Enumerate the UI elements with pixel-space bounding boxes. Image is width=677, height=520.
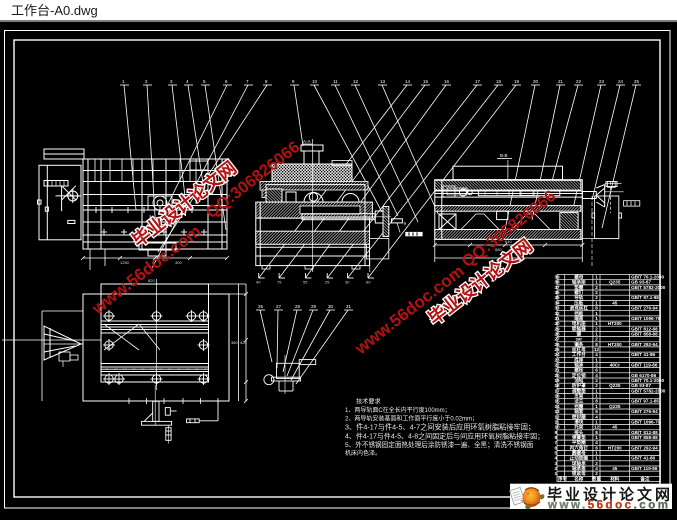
svg-text:工作台-A0.dwg: 工作台-A0.dwg bbox=[11, 3, 98, 18]
svg-text:26: 26 bbox=[258, 304, 264, 309]
svg-text:GB/T 292-94: GB/T 292-94 bbox=[631, 342, 658, 347]
svg-text:GB/T 5782-2000: GB/T 5782-2000 bbox=[631, 388, 666, 393]
svg-text:HT200: HT200 bbox=[608, 321, 622, 326]
svg-text:17: 17 bbox=[475, 79, 481, 84]
svg-text:GB/T 1096-79: GB/T 1096-79 bbox=[631, 419, 661, 424]
svg-text:材料: 材料 bbox=[609, 475, 620, 482]
svg-text:4、件4-17与件4-5、4-8之间固定后与间应用环氧树脂粘: 4、件4-17与件4-5、4-8之间固定后与间应用环氧树脂粘接牢固； bbox=[345, 432, 544, 441]
svg-text:2、两导轨安装基面和工作面平行度小于0.02mm；: 2、两导轨安装基面和工作面平行度小于0.02mm； bbox=[345, 415, 478, 423]
svg-text:60: 60 bbox=[366, 280, 371, 285]
svg-text:GB/T 119-86: GB/T 119-86 bbox=[631, 466, 658, 471]
svg-text:40Cr: 40Cr bbox=[610, 363, 620, 368]
svg-text:30: 30 bbox=[328, 304, 334, 309]
svg-text:28: 28 bbox=[295, 304, 301, 309]
svg-text:GB/T 1096-79: GB/T 1096-79 bbox=[631, 316, 661, 321]
svg-text:GB/T 276-94: GB/T 276-94 bbox=[631, 306, 658, 311]
svg-text:技术要求: 技术要求 bbox=[356, 398, 381, 406]
svg-text:19: 19 bbox=[514, 79, 520, 84]
svg-text:45: 45 bbox=[612, 466, 618, 471]
svg-text:GB/T 292-94: GB/T 292-94 bbox=[631, 445, 658, 450]
svg-text:GB/T 41-86: GB/T 41-86 bbox=[631, 352, 655, 357]
svg-text:1、两导轨面C在全长内平行度100mm；: 1、两导轨面C在全长内平行度100mm； bbox=[345, 406, 451, 414]
svg-text:27: 27 bbox=[276, 304, 282, 309]
svg-text:备注: 备注 bbox=[639, 475, 650, 482]
svg-text:55: 55 bbox=[303, 280, 308, 285]
svg-text:15: 15 bbox=[423, 79, 429, 84]
svg-text:GB/T 858-88: GB/T 858-88 bbox=[631, 332, 658, 337]
svg-text:机床内色泽。: 机床内色泽。 bbox=[345, 449, 381, 457]
svg-text:GB/T 276-94: GB/T 276-94 bbox=[631, 409, 658, 414]
svg-text:GB/T 858-88: GB/T 858-88 bbox=[631, 435, 658, 440]
svg-text:序号: 序号 bbox=[558, 475, 568, 482]
svg-text:40: 40 bbox=[256, 280, 261, 285]
svg-text:29: 29 bbox=[311, 304, 317, 309]
svg-text:21: 21 bbox=[558, 79, 564, 84]
svg-text:75: 75 bbox=[277, 280, 282, 285]
svg-text:HT200: HT200 bbox=[608, 342, 622, 347]
svg-text:300: 300 bbox=[175, 260, 182, 265]
svg-text:名称: 名称 bbox=[574, 475, 584, 482]
svg-text:18: 18 bbox=[496, 79, 502, 84]
svg-text:23: 23 bbox=[599, 79, 605, 84]
svg-text:GB/T 97.1-85: GB/T 97.1-85 bbox=[631, 295, 659, 300]
svg-text:11: 11 bbox=[333, 79, 338, 84]
svg-text:25: 25 bbox=[634, 79, 640, 84]
svg-text:Q235: Q235 bbox=[609, 404, 621, 409]
svg-text:420: 420 bbox=[240, 340, 247, 345]
svg-text:45: 45 bbox=[612, 300, 618, 305]
svg-text:25: 25 bbox=[325, 280, 330, 285]
svg-text:Q235: Q235 bbox=[609, 280, 621, 285]
svg-text:45: 45 bbox=[612, 425, 618, 430]
svg-text:30: 30 bbox=[345, 280, 350, 285]
svg-text:360: 360 bbox=[231, 340, 238, 345]
svg-text:24: 24 bbox=[618, 79, 624, 84]
svg-text:31: 31 bbox=[346, 304, 352, 309]
svg-text:20: 20 bbox=[533, 79, 539, 84]
svg-text:HT200: HT200 bbox=[608, 445, 622, 450]
svg-text:16: 16 bbox=[444, 79, 450, 84]
svg-text:数量: 数量 bbox=[592, 475, 602, 482]
svg-text:GB/T 97.1-85: GB/T 97.1-85 bbox=[631, 399, 659, 404]
svg-text:Q235: Q235 bbox=[609, 383, 621, 388]
svg-text:1250: 1250 bbox=[120, 260, 130, 265]
svg-text:12: 12 bbox=[353, 79, 359, 84]
svg-text:22: 22 bbox=[576, 79, 582, 84]
svg-text:10: 10 bbox=[312, 79, 318, 84]
svg-text:www.56doc.com: www.56doc.com bbox=[547, 500, 668, 512]
svg-text:GB/T 41-86: GB/T 41-86 bbox=[631, 456, 655, 461]
svg-text:GB/T 119-86: GB/T 119-86 bbox=[631, 363, 658, 368]
svg-text:14: 14 bbox=[405, 79, 411, 84]
svg-text:3、件4-17与件4-5、4-7之间安装后应用环氧树脂粘接牢: 3、件4-17与件4-5、4-7之间安装后应用环氧树脂粘接牢固； bbox=[345, 423, 535, 432]
svg-text:13: 13 bbox=[380, 79, 386, 84]
svg-text:B-B: B-B bbox=[500, 153, 508, 158]
svg-text:5、外不锈钢固定面热处理后涂防锈漆一遍、全黑；清洗不锈钢面: 5、外不锈钢固定面热处理后涂防锈漆一遍、全黑；清洗不锈钢面 bbox=[345, 440, 534, 449]
svg-text:GB/T 5782-2000: GB/T 5782-2000 bbox=[631, 285, 666, 290]
svg-text:A-A: A-A bbox=[303, 139, 311, 144]
